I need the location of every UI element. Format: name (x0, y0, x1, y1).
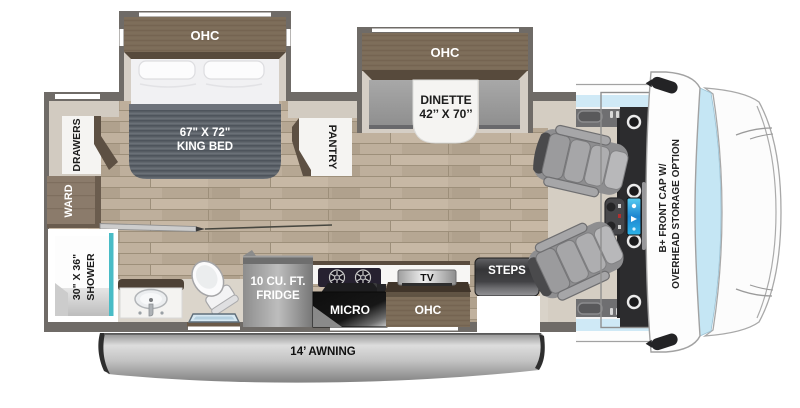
svg-text:OHC: OHC (191, 28, 221, 43)
svg-text:DINETTE: DINETTE (420, 93, 471, 107)
svg-text:14’ AWNING: 14’ AWNING (290, 346, 355, 358)
svg-text:67" X 72": 67" X 72" (180, 127, 231, 139)
svg-text:OHC: OHC (415, 303, 442, 317)
svg-text:MICRO: MICRO (330, 303, 370, 317)
svg-text:FRIDGE: FRIDGE (256, 290, 300, 302)
svg-text:TV: TV (420, 272, 433, 284)
svg-text:DRAWERS: DRAWERS (72, 118, 83, 171)
svg-text:SHOWER: SHOWER (85, 253, 97, 301)
svg-text:30" X 36": 30" X 36" (71, 254, 83, 300)
svg-text:STEPS: STEPS (488, 265, 526, 277)
svg-text:OVERHEAD STORAGE OPTION: OVERHEAD STORAGE OPTION (671, 139, 682, 289)
svg-text:PANTRY: PANTRY (326, 125, 338, 170)
svg-text:KING BED: KING BED (177, 141, 233, 153)
svg-text:OHC: OHC (431, 45, 461, 60)
svg-text:WARD: WARD (63, 184, 75, 217)
svg-text:10 CU. FT.: 10 CU. FT. (251, 276, 306, 288)
svg-text:B+ FRONT CAP W/: B+ FRONT CAP W/ (658, 163, 669, 252)
svg-text:42’’ X 70’’: 42’’ X 70’’ (419, 107, 472, 121)
